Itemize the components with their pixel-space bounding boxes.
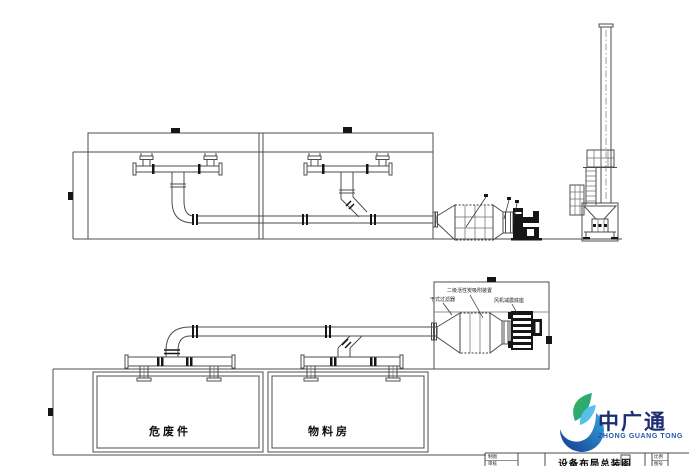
title-block-cell-drafter: 制图 (488, 454, 497, 460)
logo-name-chinese: 中广通 (598, 406, 667, 436)
plan-label-fan-base: 风机减震底座 (494, 297, 524, 304)
elevation-survey-markers (68, 127, 352, 200)
title-block-drawing-title: 设备布局总装图 (546, 456, 644, 466)
elevation-main-duct (198, 212, 438, 227)
cad-drawing-page: 危废件 物料房 干式过滤器 二级活性炭吸附装置 风机减震底座 设备布局总装图 制… (0, 0, 689, 466)
title-block-cell-checker: 审核 (488, 461, 497, 466)
plan-carbon-filter-unit (437, 313, 510, 353)
elevation-fan (511, 208, 542, 241)
title-block-cell-scale: 比例 (654, 454, 663, 460)
title-block-cell-number: 图号 (654, 461, 663, 466)
logo-name-english: ZHONG GUANG TONG (598, 433, 683, 440)
room-label-material: 物料房 (308, 423, 350, 439)
plan-main-duct (164, 323, 437, 357)
room-label-hazardous-waste: 危废件 (149, 423, 191, 439)
equipment-layout-drawing (0, 0, 689, 466)
plan-header-room1 (125, 355, 235, 381)
plan-boundary (48, 369, 486, 455)
elevation-duct-room2 (304, 153, 392, 217)
plan-label-carbon-unit: 二级活性炭吸附装置 (447, 287, 492, 294)
elevation-carbon-filter-unit (437, 205, 513, 240)
plan-fan (508, 311, 542, 350)
plan-room-hazardous-waste (93, 372, 263, 452)
plan-label-filter: 干式过滤器 (430, 296, 455, 303)
exhaust-stack-assembly (570, 24, 618, 241)
plan-header-room2 (301, 336, 403, 381)
elevation-duct-room1 (133, 153, 222, 225)
plan-room-material (268, 372, 428, 452)
